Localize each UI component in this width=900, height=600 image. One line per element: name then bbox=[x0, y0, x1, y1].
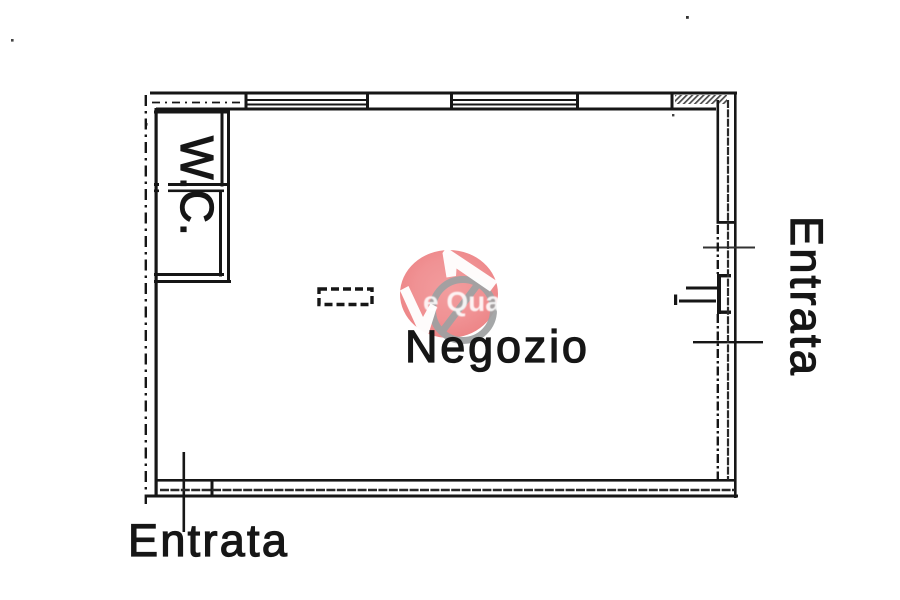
svg-text:Entrata: Entrata bbox=[781, 216, 832, 377]
svg-text:Negozio: Negozio bbox=[405, 321, 590, 372]
svg-text:e Quart: e Quart bbox=[423, 286, 521, 317]
svg-text:Entrata: Entrata bbox=[128, 515, 289, 566]
svg-text:W.C.: W.C. bbox=[171, 136, 223, 236]
